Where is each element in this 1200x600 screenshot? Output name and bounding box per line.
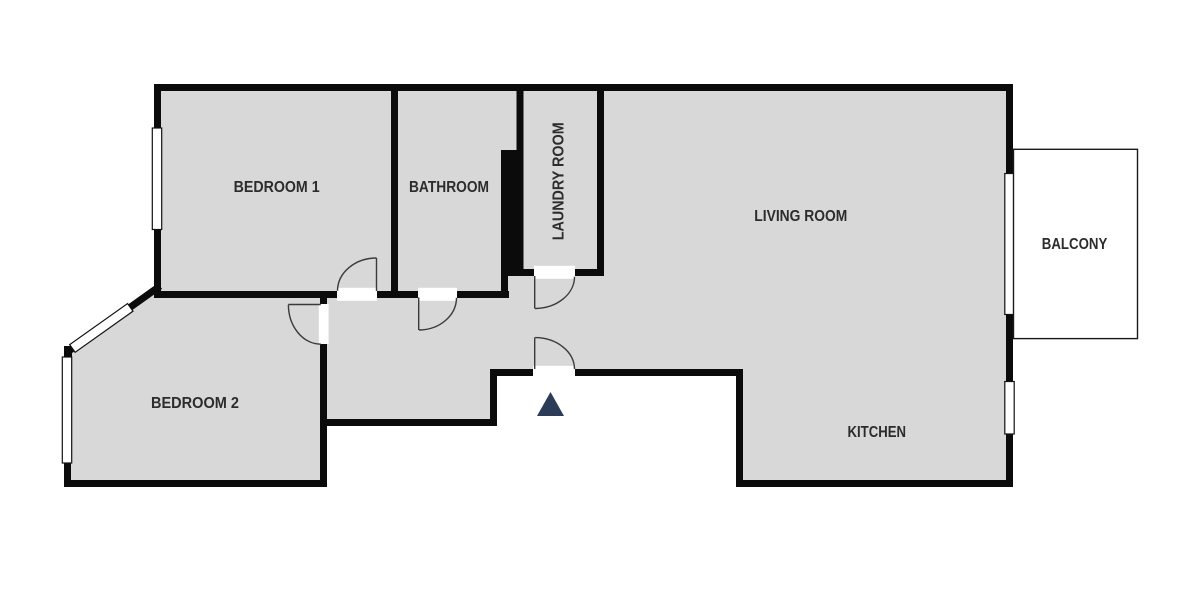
- svg-text:BEDROOM 1: BEDROOM 1: [234, 179, 320, 196]
- svg-text:KITCHEN: KITCHEN: [848, 424, 907, 441]
- svg-text:LAUNDRY ROOM: LAUNDRY ROOM: [551, 122, 568, 240]
- svg-text:LIVING ROOM: LIVING ROOM: [754, 208, 847, 225]
- svg-text:BEDROOM 2: BEDROOM 2: [151, 395, 239, 412]
- svg-text:BALCONY: BALCONY: [1042, 236, 1108, 253]
- svg-text:BATHROOM: BATHROOM: [409, 179, 489, 196]
